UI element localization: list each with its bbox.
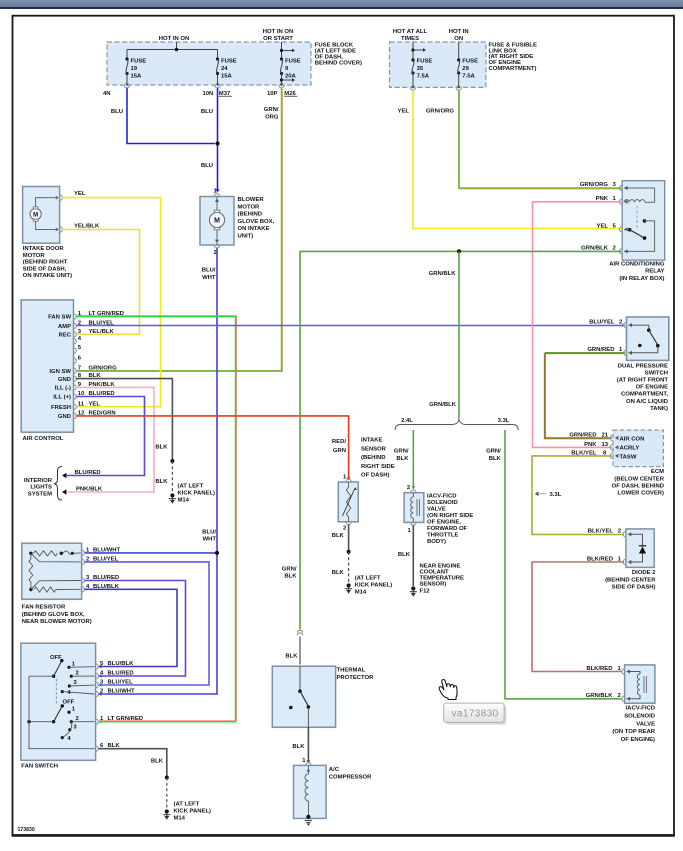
svg-text:OR START: OR START xyxy=(263,36,293,42)
svg-text:BLU/YEL: BLU/YEL xyxy=(108,680,134,686)
svg-text:BLK: BLK xyxy=(396,456,409,462)
svg-text:OF DASH): OF DASH) xyxy=(361,473,390,479)
svg-text:OF ENGINE: OF ENGINE xyxy=(636,385,668,391)
svg-text:FAN SWITCH: FAN SWITCH xyxy=(21,763,58,769)
svg-text:VALVE: VALVE xyxy=(636,721,655,727)
svg-text:24: 24 xyxy=(221,66,228,72)
svg-text:GRN/BLK: GRN/BLK xyxy=(429,402,457,408)
svg-text:IGN SW: IGN SW xyxy=(49,369,71,375)
svg-text:35: 35 xyxy=(417,66,424,72)
svg-text:FRESH: FRESH xyxy=(51,405,71,411)
svg-text:BLK: BLK xyxy=(285,654,298,660)
svg-text:COMPARTMENT): COMPARTMENT) xyxy=(489,66,537,72)
svg-text:SWITCH: SWITCH xyxy=(645,370,668,376)
svg-text:TANK): TANK) xyxy=(650,406,668,412)
svg-text:ECM: ECM xyxy=(651,469,664,475)
svg-text:GRN: GRN xyxy=(333,448,346,454)
svg-text:GRN/BLK: GRN/BLK xyxy=(586,693,614,699)
svg-text:M14: M14 xyxy=(355,589,367,595)
svg-text:OF ENGINE,: OF ENGINE, xyxy=(427,520,461,526)
svg-text:GND: GND xyxy=(58,377,71,383)
svg-text:INTAKE DOOR: INTAKE DOOR xyxy=(23,246,65,252)
svg-text:FAN RESISTOR: FAN RESISTOR xyxy=(22,605,66,611)
svg-text:M: M xyxy=(33,212,38,218)
svg-text:GRN/ORG: GRN/ORG xyxy=(426,109,455,115)
svg-text:KICK PANEL): KICK PANEL) xyxy=(178,490,216,496)
svg-text:KICK PANEL): KICK PANEL) xyxy=(174,809,212,815)
svg-text:(BELOW CENTER: (BELOW CENTER xyxy=(614,476,664,482)
svg-text:PNK: PNK xyxy=(584,442,597,448)
svg-text:21: 21 xyxy=(602,432,609,438)
svg-text:FUSE: FUSE xyxy=(221,59,237,65)
svg-text:PNK/BLK: PNK/BLK xyxy=(76,486,103,492)
svg-text:PROTECTOR: PROTECTOR xyxy=(337,675,375,681)
svg-text:ON INTAKE UNIT): ON INTAKE UNIT) xyxy=(23,273,72,279)
svg-text:SENSOR): SENSOR) xyxy=(420,581,447,587)
svg-text:FUSE: FUSE xyxy=(285,59,301,65)
svg-text:AMP: AMP xyxy=(58,324,71,330)
svg-text:ON INTAKE: ON INTAKE xyxy=(238,226,270,232)
svg-text:BLK/RED: BLK/RED xyxy=(586,666,612,672)
svg-text:ORG: ORG xyxy=(265,115,279,121)
svg-text:(AT LEFT: (AT LEFT xyxy=(355,575,381,581)
svg-text:THROTTLE: THROTTLE xyxy=(427,533,458,539)
svg-text:IACV-FICD: IACV-FICD xyxy=(626,706,655,712)
svg-text:INTAKE: INTAKE xyxy=(361,438,383,444)
svg-text:DIODE 2: DIODE 2 xyxy=(632,570,656,576)
svg-text:ACRLY: ACRLY xyxy=(620,446,640,452)
svg-text:RELAY: RELAY xyxy=(645,269,664,275)
svg-text:A/C: A/C xyxy=(329,767,340,773)
svg-text:BLOWER: BLOWER xyxy=(238,197,265,203)
svg-text:BLU/YEL: BLU/YEL xyxy=(589,319,615,325)
svg-text:BLU: BLU xyxy=(111,109,123,115)
svg-text:BLU/RED: BLU/RED xyxy=(108,671,134,677)
svg-text:BLU/: BLU/ xyxy=(202,268,216,274)
svg-text:OF DASH, BEHIND: OF DASH, BEHIND xyxy=(612,484,664,490)
svg-text:BLU/WHT: BLU/WHT xyxy=(108,689,136,695)
svg-text:M: M xyxy=(214,218,220,225)
svg-text:HOT IN: HOT IN xyxy=(449,29,469,35)
svg-text:YEL: YEL xyxy=(74,191,86,197)
svg-text:RIGHT SIDE: RIGHT SIDE xyxy=(361,464,395,470)
svg-text:UNIT): UNIT) xyxy=(238,234,254,240)
svg-text:(AT RIGHT FRONT: (AT RIGHT FRONT xyxy=(617,378,669,384)
svg-text:F12: F12 xyxy=(420,588,431,594)
svg-text:ON: ON xyxy=(454,36,463,42)
svg-text:M14: M14 xyxy=(174,816,186,822)
svg-text:BLU/RED: BLU/RED xyxy=(75,470,101,476)
svg-text:COMPARTMENT,: COMPARTMENT, xyxy=(621,392,668,398)
svg-text:BLK: BLK xyxy=(489,456,502,462)
svg-text:FORWARD OF: FORWARD OF xyxy=(427,526,468,532)
svg-text:173830: 173830 xyxy=(18,827,35,833)
svg-text:YEL/BLK: YEL/BLK xyxy=(74,224,100,230)
svg-text:7.5A: 7.5A xyxy=(462,74,475,80)
svg-text:BLK: BLK xyxy=(151,759,164,765)
svg-text:3.3L: 3.3L xyxy=(498,418,510,424)
svg-text:AIR CONDITIONING: AIR CONDITIONING xyxy=(609,261,665,267)
svg-text:10N: 10N xyxy=(203,91,214,97)
svg-text:BLK: BLK xyxy=(292,744,305,750)
svg-text:15A: 15A xyxy=(221,74,233,80)
svg-text:SOLENOID: SOLENOID xyxy=(427,500,458,506)
svg-text:SIDE OF DASH,: SIDE OF DASH, xyxy=(23,266,67,272)
svg-text:OF ENGINE): OF ENGINE) xyxy=(621,737,655,743)
svg-text:YEL: YEL xyxy=(89,401,101,407)
svg-text:RED/: RED/ xyxy=(332,439,346,445)
svg-text:SIDE OF DASH): SIDE OF DASH) xyxy=(612,585,656,591)
svg-text:FAN SW: FAN SW xyxy=(48,315,71,321)
svg-text:(AT LEFT: (AT LEFT xyxy=(178,483,204,489)
svg-text:(ON RIGHT SIDE: (ON RIGHT SIDE xyxy=(427,513,473,519)
svg-text:(AT LEFT: (AT LEFT xyxy=(174,802,200,808)
svg-text:SOLENOID: SOLENOID xyxy=(624,714,655,720)
svg-text:29: 29 xyxy=(462,66,469,72)
svg-text:BEHIND COVER): BEHIND COVER) xyxy=(315,60,362,66)
svg-text:VALVE: VALVE xyxy=(427,507,446,513)
svg-text:IACV-FICD: IACV-FICD xyxy=(427,494,456,500)
svg-text:BLU: BLU xyxy=(201,163,213,169)
svg-text:(BEHIND CENTER: (BEHIND CENTER xyxy=(605,577,656,583)
svg-text:HOT IN ON: HOT IN ON xyxy=(263,29,293,35)
svg-text:15A: 15A xyxy=(131,74,143,80)
svg-text:BLK/YEL: BLK/YEL xyxy=(588,529,614,535)
svg-text:BLK: BLK xyxy=(155,444,168,450)
svg-text:YEL: YEL xyxy=(398,109,410,115)
svg-text:11: 11 xyxy=(78,401,85,407)
svg-text:(ON TOP REAR: (ON TOP REAR xyxy=(612,729,655,735)
svg-text:TASW: TASW xyxy=(620,454,637,460)
svg-text:GRN/: GRN/ xyxy=(486,449,501,455)
svg-text:GLOVE BOX,: GLOVE BOX, xyxy=(238,219,275,225)
svg-text:SYSTEM: SYSTEM xyxy=(28,491,52,497)
svg-text:GRN/ORG: GRN/ORG xyxy=(580,182,609,188)
svg-text:M14: M14 xyxy=(178,497,190,503)
svg-text:HOT AT ALL: HOT AT ALL xyxy=(393,29,428,35)
svg-text:WHT: WHT xyxy=(202,275,216,281)
svg-text:20A: 20A xyxy=(285,74,297,80)
svg-text:LIGHTS: LIGHTS xyxy=(30,485,52,491)
svg-text:TIMES: TIMES xyxy=(401,36,419,42)
svg-text:BLU/: BLU/ xyxy=(202,529,216,535)
svg-text:WHT: WHT xyxy=(203,537,217,543)
svg-text:GRN/RED: GRN/RED xyxy=(587,347,614,353)
svg-text:BLU: BLU xyxy=(201,109,213,115)
svg-text:GRN/RED: GRN/RED xyxy=(569,432,596,438)
svg-text:(BEHIND RIGHT: (BEHIND RIGHT xyxy=(23,260,68,266)
svg-text:OFF: OFF xyxy=(63,700,75,706)
svg-text:GRN/: GRN/ xyxy=(264,107,279,113)
svg-text:GRN/BLK: GRN/BLK xyxy=(429,271,457,277)
svg-text:BLK: BLK xyxy=(398,552,411,558)
svg-text:BLK: BLK xyxy=(155,479,168,485)
svg-text:YEL/BLK: YEL/BLK xyxy=(89,329,115,335)
svg-text:19: 19 xyxy=(131,66,138,72)
svg-text:COMPRESSOR: COMPRESSOR xyxy=(329,775,372,781)
svg-text:10P: 10P xyxy=(267,91,278,97)
svg-text:7.5A: 7.5A xyxy=(417,74,430,80)
svg-text:BODY): BODY) xyxy=(427,539,446,545)
svg-text:(BEHIND GLOVE BOX,: (BEHIND GLOVE BOX, xyxy=(22,612,85,618)
svg-text:GRN/: GRN/ xyxy=(394,449,409,455)
svg-text:(BEHIND: (BEHIND xyxy=(238,212,263,218)
svg-text:va173830: va173830 xyxy=(452,709,499,720)
svg-text:13: 13 xyxy=(602,442,609,448)
svg-text:SENSOR: SENSOR xyxy=(361,446,387,452)
svg-text:BLK: BLK xyxy=(332,570,345,576)
svg-text:LT GRN/RED: LT GRN/RED xyxy=(108,716,144,722)
svg-text:DUAL PRESSURE: DUAL PRESSURE xyxy=(618,363,668,369)
svg-text:BLK: BLK xyxy=(284,574,297,580)
svg-text:YEL: YEL xyxy=(597,223,609,229)
svg-text:BLU/WHT: BLU/WHT xyxy=(93,548,121,554)
svg-text:MOTOR: MOTOR xyxy=(23,253,46,259)
svg-text:BLU/BLK: BLU/BLK xyxy=(108,661,135,667)
svg-text:NEAR BLOWER MOTOR): NEAR BLOWER MOTOR) xyxy=(22,619,92,625)
svg-text:ON A/C LIQUID: ON A/C LIQUID xyxy=(626,399,668,405)
svg-text:2.4L: 2.4L xyxy=(401,418,413,424)
svg-text:HOT IN ON: HOT IN ON xyxy=(159,36,189,42)
svg-text:AIR CON: AIR CON xyxy=(620,436,645,442)
svg-text:MOTOR: MOTOR xyxy=(238,204,261,210)
svg-text:ILL (-): ILL (-) xyxy=(55,386,71,392)
svg-text:ILL (+): ILL (+) xyxy=(53,395,71,401)
svg-text:GRN/ORG: GRN/ORG xyxy=(89,365,118,371)
svg-text:AIR CONTROL: AIR CONTROL xyxy=(23,436,64,442)
svg-text:(IN RELAY BOX): (IN RELAY BOX) xyxy=(619,276,664,282)
svg-text:INTERIOR: INTERIOR xyxy=(24,478,53,484)
svg-text:(BEHIND: (BEHIND xyxy=(361,455,386,461)
svg-text:3.3L: 3.3L xyxy=(550,492,562,498)
svg-text:REC: REC xyxy=(59,332,72,338)
svg-text:GND: GND xyxy=(58,414,71,420)
svg-text:THERMAL: THERMAL xyxy=(337,668,366,674)
svg-text:FUSE: FUSE xyxy=(462,59,478,65)
svg-text:LOWER COVER): LOWER COVER) xyxy=(618,491,665,497)
svg-text:4N: 4N xyxy=(103,91,111,97)
svg-text:GRN/: GRN/ xyxy=(282,566,297,572)
svg-text:BLK: BLK xyxy=(332,533,345,539)
svg-text:KICK PANEL): KICK PANEL) xyxy=(355,582,393,588)
svg-text:FUSE: FUSE xyxy=(131,59,147,65)
svg-text:FUSE: FUSE xyxy=(417,59,433,65)
